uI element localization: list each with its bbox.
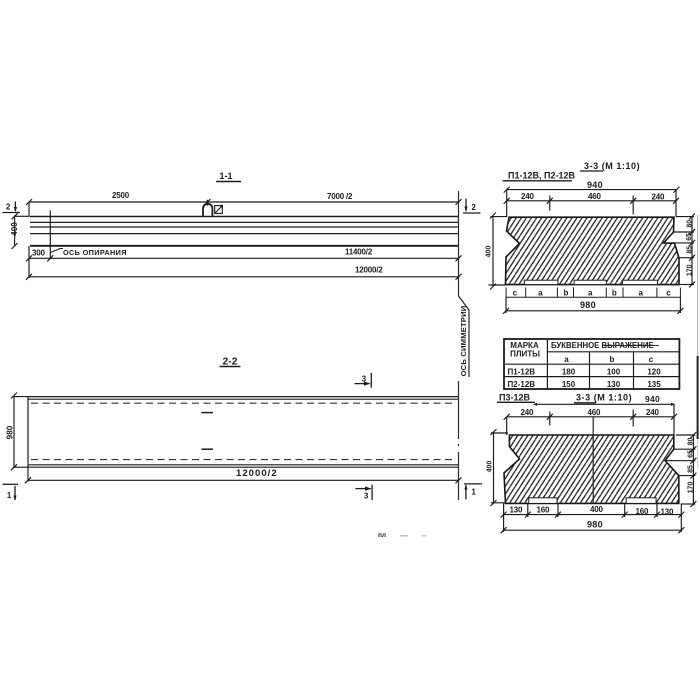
- svg-text:П3-12В: П3-12В: [499, 393, 530, 403]
- svg-text:100: 100: [607, 368, 621, 377]
- svg-text:П1-12В, П2-12В: П1-12В, П2-12В: [508, 171, 575, 181]
- svg-text:a: a: [588, 289, 593, 298]
- svg-text:400: 400: [487, 461, 494, 473]
- svg-text:460: 460: [588, 408, 601, 417]
- svg-text:460: 460: [588, 192, 601, 201]
- svg-text:ОСЬ СИММЕТРИИ: ОСЬ СИММЕТРИИ: [459, 306, 468, 377]
- svg-text:3-3 (М 1:10): 3-3 (М 1:10): [576, 393, 632, 403]
- svg-text:85: 85: [686, 246, 693, 254]
- svg-text:400: 400: [10, 222, 19, 236]
- svg-text:3: 3: [362, 375, 367, 384]
- svg-text:120: 120: [647, 368, 661, 377]
- svg-text:b: b: [612, 289, 617, 298]
- svg-text:ПЛИТЫ: ПЛИТЫ: [510, 350, 540, 359]
- svg-text:170: 170: [688, 482, 695, 494]
- svg-text:12000/2: 12000/2: [236, 468, 278, 479]
- svg-text:240: 240: [521, 192, 534, 201]
- svg-text:b: b: [564, 289, 569, 298]
- svg-text:240: 240: [652, 193, 665, 202]
- svg-text:пл: пл: [378, 532, 386, 539]
- svg-text:a: a: [538, 289, 543, 298]
- svg-text:130: 130: [661, 508, 674, 517]
- svg-text:b: b: [610, 355, 615, 364]
- svg-text:12000/2: 12000/2: [355, 266, 383, 275]
- svg-text:П1-12В: П1-12В: [508, 368, 536, 377]
- svg-text:a: a: [564, 355, 569, 364]
- svg-text:160: 160: [537, 506, 550, 515]
- svg-text:a: a: [638, 289, 643, 298]
- svg-text:130: 130: [607, 380, 621, 389]
- svg-text:150: 150: [562, 380, 576, 389]
- svg-text:980: 980: [580, 300, 596, 310]
- svg-text:65: 65: [686, 233, 693, 241]
- svg-text:85: 85: [688, 465, 695, 473]
- svg-text:ОСЬ ОПИРАНИЯ: ОСЬ ОПИРАНИЯ: [63, 248, 127, 257]
- svg-text:400: 400: [486, 246, 493, 258]
- svg-text:3-3 (М 1:10): 3-3 (М 1:10): [584, 161, 640, 171]
- svg-text:240: 240: [521, 408, 534, 417]
- svg-text:980: 980: [587, 520, 603, 530]
- svg-text:940: 940: [587, 180, 603, 190]
- svg-text:300: 300: [32, 249, 45, 258]
- svg-text:80: 80: [686, 220, 693, 228]
- svg-text:2500: 2500: [112, 191, 130, 200]
- svg-text:130: 130: [510, 506, 523, 515]
- svg-text:980: 980: [6, 425, 15, 439]
- svg-text:c: c: [649, 355, 654, 364]
- svg-text:135: 135: [647, 380, 661, 389]
- svg-text:c: c: [513, 289, 518, 298]
- svg-text:П2-12В: П2-12В: [508, 380, 536, 389]
- svg-text:180: 180: [562, 368, 576, 377]
- svg-text:c: c: [666, 289, 671, 298]
- svg-text:160: 160: [636, 507, 649, 516]
- svg-text:65: 65: [688, 450, 695, 458]
- svg-text:170: 170: [687, 264, 694, 276]
- svg-text:240: 240: [646, 408, 659, 417]
- svg-text:940: 940: [645, 394, 660, 404]
- svg-text:11400/2: 11400/2: [345, 248, 373, 257]
- svg-text:400: 400: [590, 505, 603, 514]
- svg-text:7000 /2: 7000 /2: [327, 192, 353, 201]
- svg-text:1-1: 1-1: [219, 171, 232, 181]
- svg-text:80: 80: [688, 438, 695, 446]
